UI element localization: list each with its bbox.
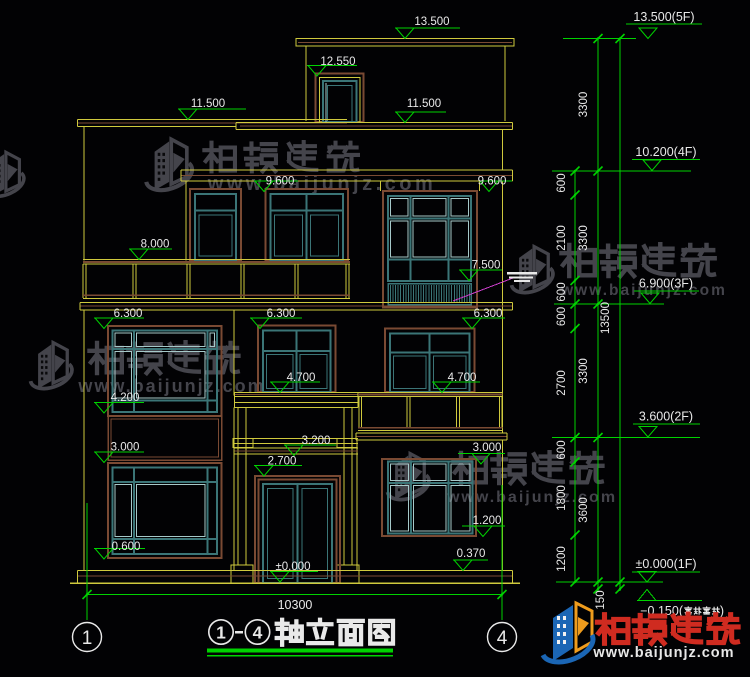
svg-text:13.500(5F): 13.500(5F) — [633, 10, 694, 24]
svg-text:1800: 1800 — [556, 485, 568, 511]
svg-text:3300: 3300 — [578, 225, 590, 251]
svg-text:4: 4 — [497, 628, 508, 649]
svg-text:4.200: 4.200 — [111, 392, 140, 404]
svg-text:600: 600 — [556, 173, 568, 192]
svg-text:11.500: 11.500 — [407, 98, 441, 110]
svg-text:2.700: 2.700 — [268, 456, 297, 468]
svg-text:2100: 2100 — [556, 225, 568, 251]
svg-text:4.700: 4.700 — [287, 372, 316, 384]
svg-text:1200: 1200 — [556, 546, 568, 572]
svg-text:±0.000(1F): ±0.000(1F) — [635, 557, 696, 571]
svg-text:6.300: 6.300 — [267, 308, 296, 320]
svg-text:10.200(4F): 10.200(4F) — [635, 145, 696, 159]
svg-text:13.500: 13.500 — [414, 16, 449, 28]
svg-text:9.600: 9.600 — [478, 176, 507, 188]
svg-text:6.900(3F): 6.900(3F) — [639, 277, 693, 291]
svg-text:3600: 3600 — [578, 497, 590, 523]
svg-text:0.600: 0.600 — [112, 541, 141, 553]
svg-text:0.370: 0.370 — [457, 548, 486, 560]
svg-text:12.550: 12.550 — [320, 56, 355, 68]
svg-text:3.200: 3.200 — [302, 435, 331, 447]
svg-text:): ) — [720, 604, 724, 618]
svg-text:2700: 2700 — [556, 370, 568, 396]
svg-text:3300: 3300 — [578, 358, 590, 384]
svg-text:6.300: 6.300 — [114, 308, 143, 320]
svg-text:9.600: 9.600 — [266, 176, 295, 188]
svg-text:4: 4 — [253, 623, 263, 643]
svg-text:11.500: 11.500 — [191, 98, 225, 110]
svg-text:8.000: 8.000 — [141, 239, 170, 251]
svg-text:1: 1 — [216, 623, 226, 643]
svg-text:3.000: 3.000 — [473, 442, 502, 454]
svg-text:10300: 10300 — [278, 598, 313, 612]
svg-text:1: 1 — [82, 628, 93, 649]
svg-text:3300: 3300 — [578, 92, 590, 118]
svg-text:600: 600 — [556, 440, 568, 459]
svg-text:4.700: 4.700 — [448, 372, 477, 384]
svg-text:7.500: 7.500 — [472, 260, 501, 272]
svg-text:www.baijunjz.com: www.baijunjz.com — [592, 645, 734, 661]
svg-text:±0.000: ±0.000 — [275, 561, 310, 573]
svg-text:1.200: 1.200 — [473, 515, 502, 527]
svg-text:3.000: 3.000 — [111, 442, 140, 454]
svg-text:3.600(2F): 3.600(2F) — [639, 410, 693, 424]
svg-text:150: 150 — [595, 590, 607, 609]
svg-text:13500: 13500 — [600, 302, 612, 334]
svg-text:600: 600 — [556, 307, 568, 326]
svg-text:6.300: 6.300 — [474, 308, 503, 320]
svg-text:600: 600 — [556, 282, 568, 301]
